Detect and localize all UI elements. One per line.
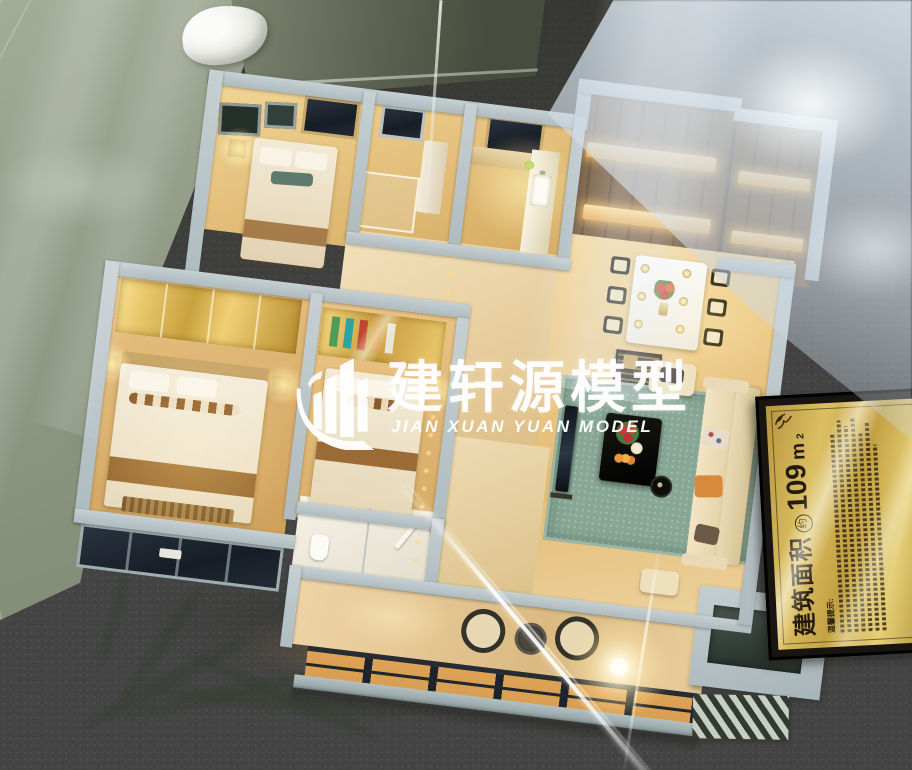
flower-centerpiece bbox=[653, 279, 678, 304]
shower-glass bbox=[358, 171, 420, 233]
nightstand bbox=[227, 138, 247, 158]
dining-chair bbox=[610, 256, 631, 275]
dining-chair bbox=[603, 315, 624, 334]
brand-watermark: 建轩源模型 JIAN XUAN YUAN MODEL bbox=[295, 335, 635, 455]
area-plaque: 建筑面积 约 109 m 2 温馨提示: bbox=[755, 388, 912, 661]
ac-louver-grille bbox=[692, 694, 789, 740]
brand-logo-icon bbox=[295, 338, 387, 450]
nightstand bbox=[270, 375, 289, 397]
watermark-subtitle: JIAN XUAN YUAN MODEL bbox=[391, 417, 653, 437]
dining-chair bbox=[703, 328, 724, 347]
window-mullion bbox=[224, 544, 232, 582]
plaque-glass-glare bbox=[766, 398, 912, 650]
orange-pillow bbox=[695, 475, 723, 497]
dining-chair bbox=[710, 268, 731, 287]
kitchen-sink bbox=[529, 174, 552, 208]
dining-chair bbox=[606, 286, 627, 305]
dining-chair bbox=[706, 298, 727, 317]
ottoman bbox=[639, 568, 680, 596]
wall-art-frame bbox=[218, 102, 262, 136]
watermark-title: 建轩源模型 bbox=[387, 343, 692, 424]
bathroom1-window bbox=[379, 105, 427, 142]
showcase-photo: 建筑面积 约 109 m 2 温馨提示: bbox=[0, 0, 912, 770]
window-sill-tray bbox=[159, 548, 182, 560]
flower-vase bbox=[658, 302, 669, 316]
window-mullion bbox=[125, 532, 133, 570]
plaque-gold-face: 建筑面积 约 109 m 2 温馨提示: bbox=[766, 398, 912, 650]
kitchen-faucet bbox=[539, 170, 545, 175]
bedroom1-window bbox=[301, 95, 361, 140]
wall-art-frame bbox=[264, 102, 297, 130]
